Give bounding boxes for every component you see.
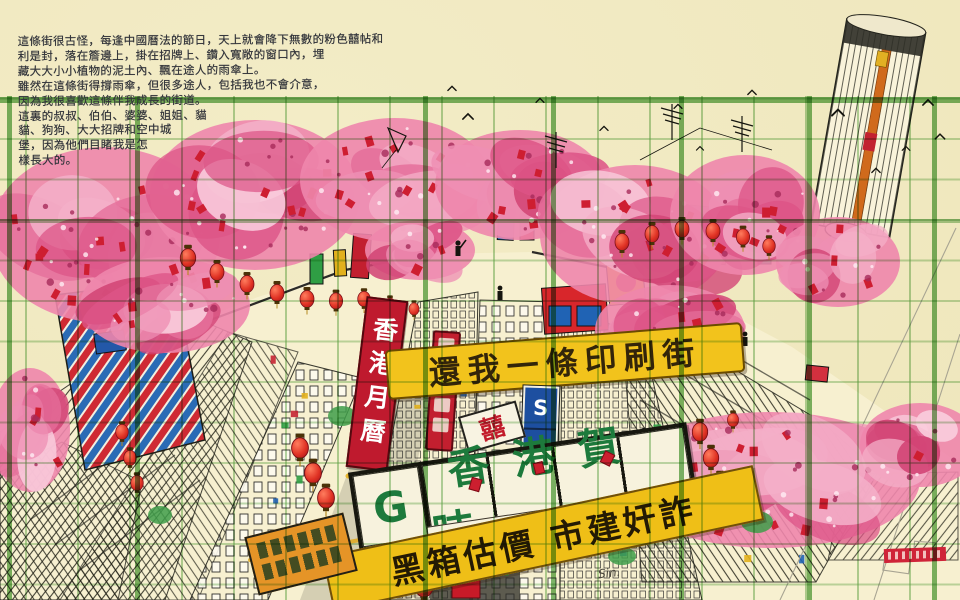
handwriting-line: 樣長大的。 <box>18 151 368 168</box>
illustration-canvas: 香港月曆 還我一條印刷街 S A 囍 G 香港賀咭 安碧月曆 黑箱估價 市建奸詐… <box>0 0 960 600</box>
signature-scribble: Sin. <box>597 565 621 581</box>
artist-stamp <box>884 547 946 563</box>
greeting-card-logo: G <box>353 466 429 547</box>
handwriting-line: 雖然在這條街得撐雨傘，但很多途人，包括我也不會介意， <box>18 76 368 93</box>
handwriting-line: 利是封，落在簷邊上，掛在招牌上、鑽入寬敞的窗口內，埋 <box>18 47 368 64</box>
handwritten-note: 這條街很古怪，每逢中國曆法的節日，天上就會降下無數的粉色囍帖和 利是封，落在簷邊… <box>18 32 369 169</box>
tower <box>809 10 927 248</box>
